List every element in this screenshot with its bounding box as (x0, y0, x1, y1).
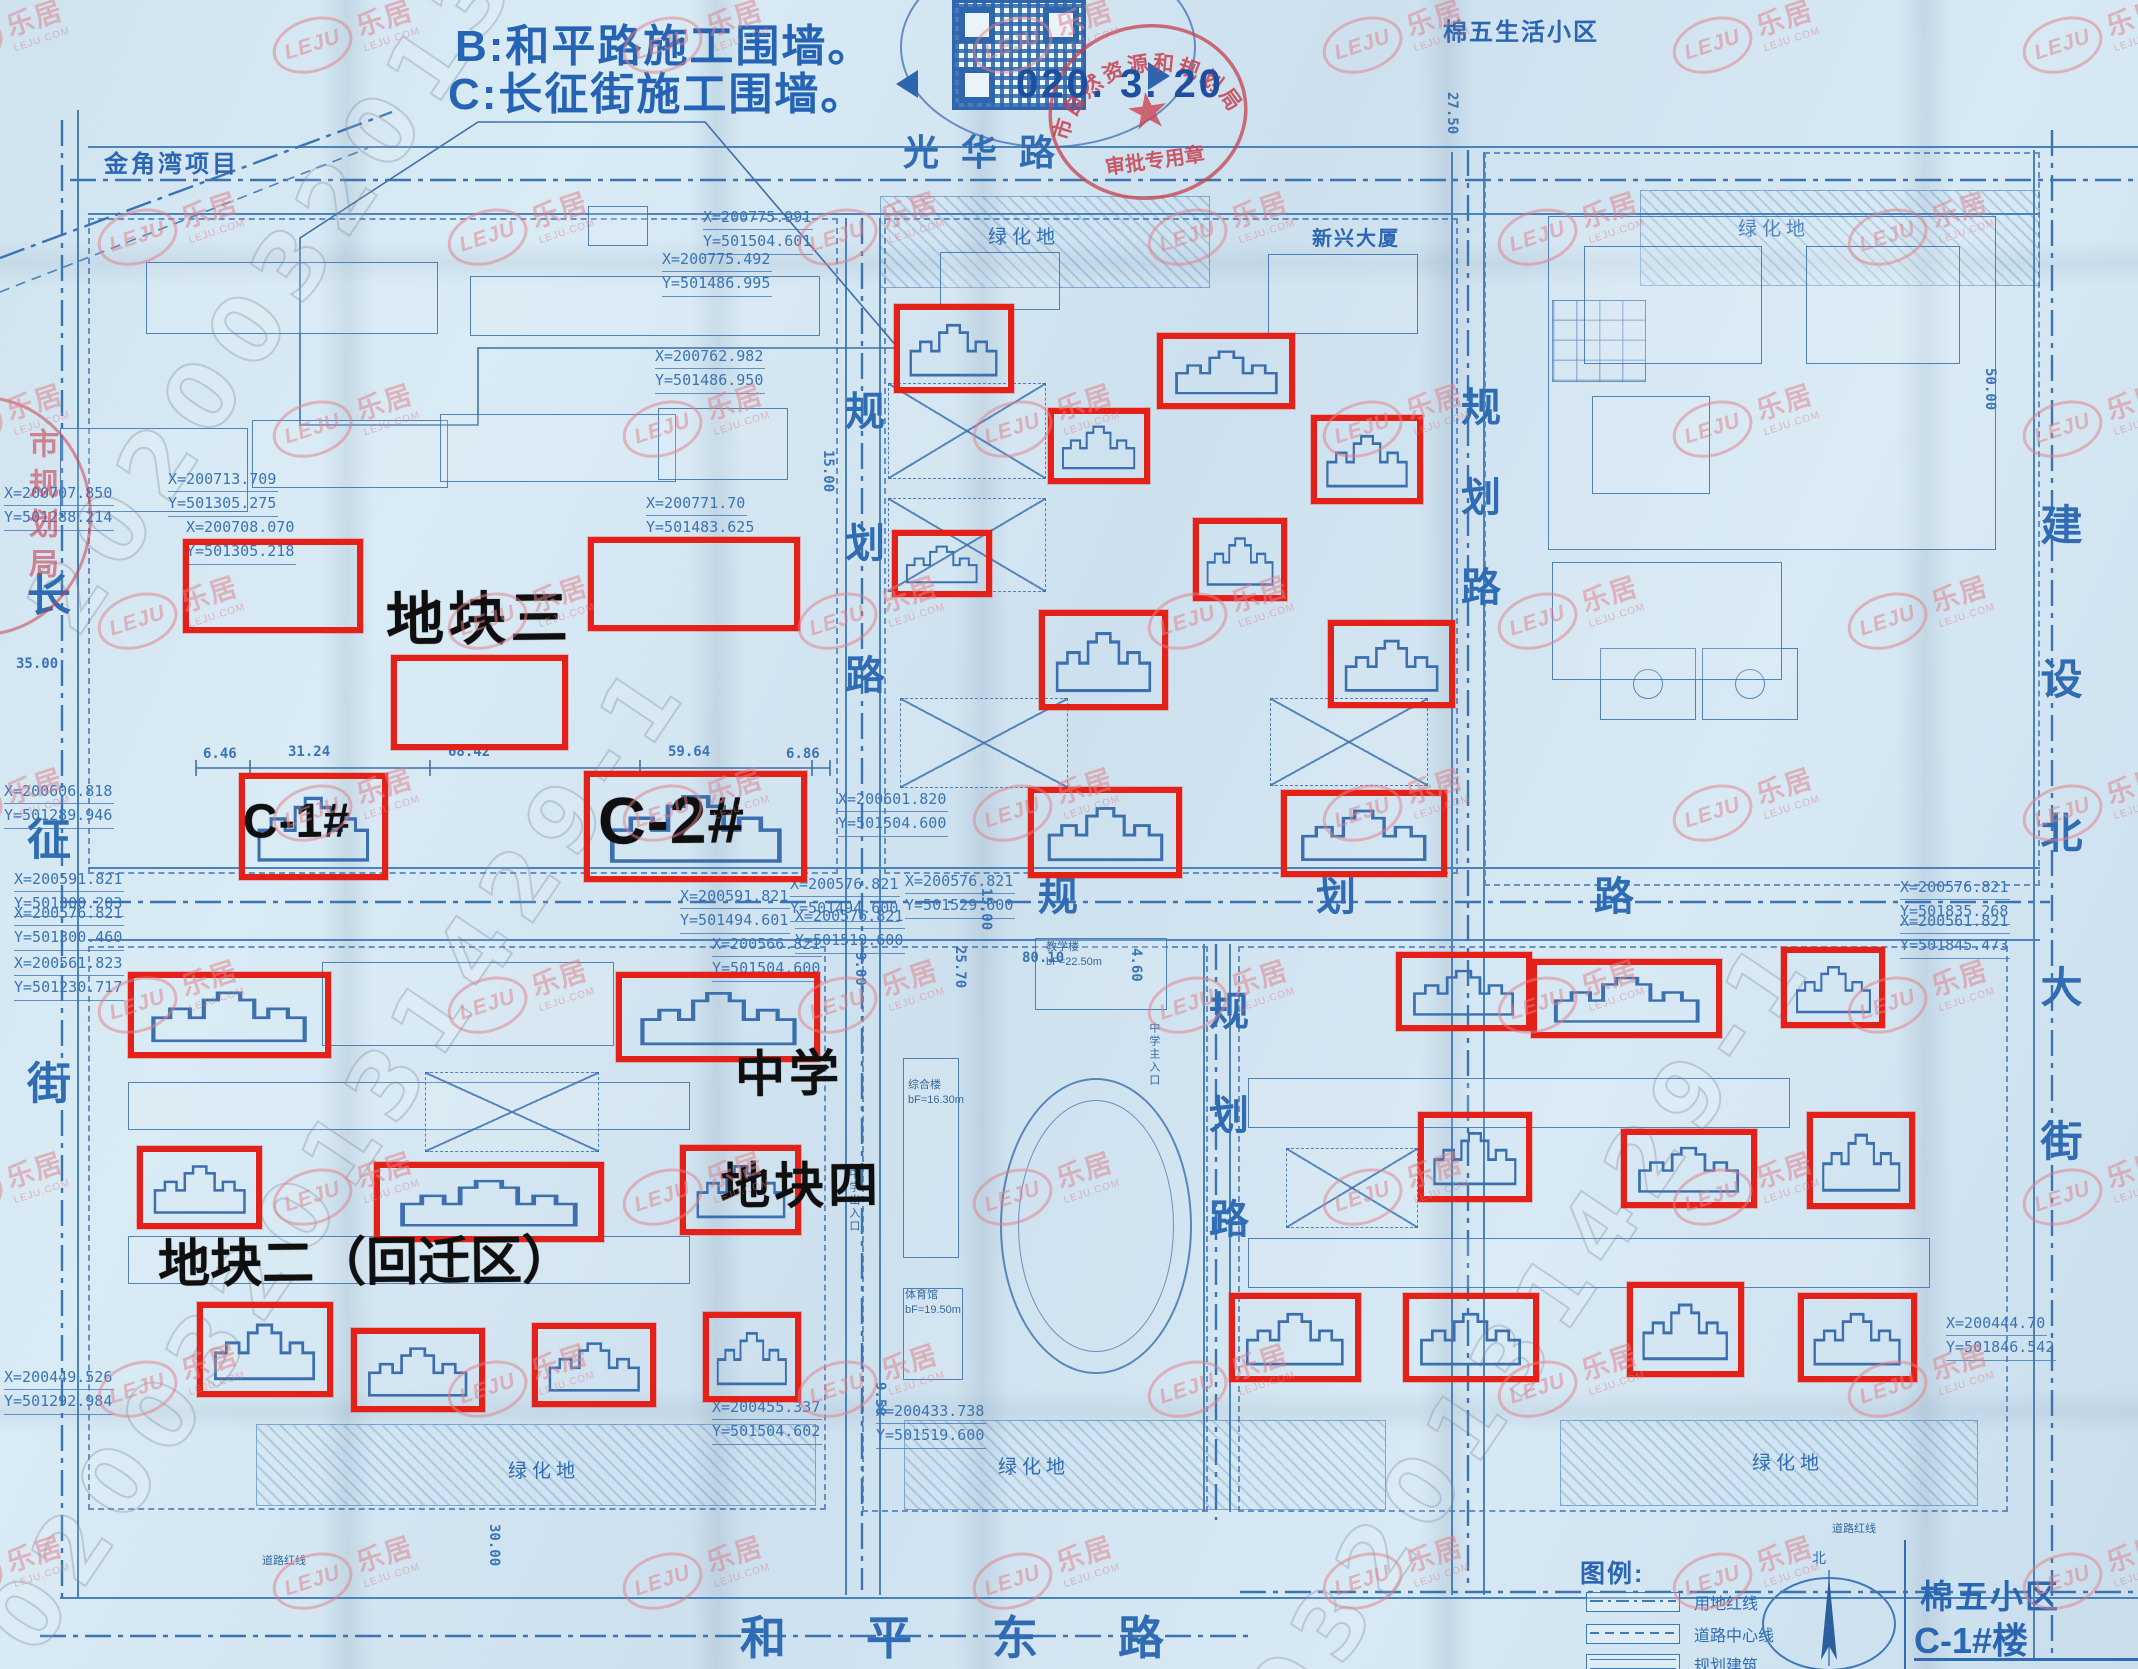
building-glyph (1323, 427, 1411, 492)
building-outline (1268, 254, 1418, 334)
dimension-label: 9.00 (852, 952, 868, 986)
highlight-box (1229, 1293, 1361, 1382)
building-outline (1592, 396, 1710, 494)
building-glyph (1793, 959, 1874, 1017)
approval-date: 020. 3. 20 (1016, 62, 1224, 107)
existing-building-crossed (425, 1072, 599, 1152)
green-area-label: 绿化地 (1752, 1448, 1824, 1475)
highlight-box (391, 655, 568, 750)
highlight-box (137, 1146, 262, 1229)
building-outline (940, 252, 1060, 310)
green-area-label: 绿化地 (988, 222, 1060, 249)
highlight-box (1311, 415, 1423, 504)
north-label: 北 (1812, 1548, 1826, 1568)
highlight-box (1328, 620, 1455, 708)
building-outline (1248, 1238, 1930, 1288)
highlight-box (1048, 408, 1150, 484)
highlight-box (1281, 790, 1447, 877)
building-glyph (906, 316, 1001, 381)
building-glyph (1341, 632, 1442, 696)
coordinate-label: X=200449.526Y=501292.984 (4, 1366, 114, 1415)
building-glyph (1171, 344, 1282, 398)
coordinate-label: X=200591.821Y=501494.601 (680, 885, 790, 934)
coordinate-label: X=200771.70Y=501483.625 (646, 492, 756, 541)
highlight-box (1039, 610, 1168, 710)
highlight-box (1621, 1129, 1757, 1208)
dimension-label: 6.46 (203, 746, 237, 762)
complex-building-label: 综合楼bF=16.30m (908, 1078, 964, 1108)
qr-finder (959, 7, 995, 43)
building-glyph (1409, 963, 1518, 1019)
titleblock-rule (1914, 1658, 2138, 1661)
road-redline-label-right: 道路红线 (1832, 1522, 1876, 1537)
planning-road-school: 规划路 (1196, 990, 1254, 1302)
road-centerline-symbol (1586, 1624, 1680, 1644)
building-glyph (1810, 1305, 1904, 1370)
highlight-box (183, 539, 363, 633)
existing-building-crossed (1270, 698, 1428, 786)
building-glyph (1416, 1305, 1525, 1370)
coordinate-label: X=200775.492Y=501486.995 (662, 248, 772, 297)
building-glyph (903, 540, 980, 586)
dimension-label: 50.00 (1982, 368, 1998, 410)
highlight-box (1028, 787, 1182, 878)
building-glyph (150, 1158, 249, 1218)
building-glyph (145, 984, 313, 1046)
highlight-box (532, 1323, 656, 1407)
dimension-label: 59.64 (668, 744, 710, 760)
building-outline (1552, 562, 1782, 680)
building-outline (1806, 246, 1960, 364)
label-c2: C-2# (598, 781, 746, 859)
coordinate-label: X=200713.709Y=501305.275 (168, 468, 278, 517)
north-compass-icon (1754, 1566, 1904, 1669)
note-line-c: C:长征街施工围墙。 (448, 58, 866, 122)
road-heping-east: 和平东路 (740, 1602, 1244, 1668)
building-glyph (1296, 802, 1432, 865)
dimension-label: 35.00 (16, 656, 58, 672)
building-outline (322, 962, 614, 1046)
titleblock-sheet: C-1#楼 (1914, 1612, 2028, 1664)
building-glyph (1819, 1125, 1903, 1196)
building-glyph (364, 1340, 471, 1400)
coordinate-label: X=200601.820Y=501504.600 (838, 788, 948, 837)
highlight-box (1798, 1293, 1917, 1382)
dimension-label: 31.24 (288, 744, 330, 760)
highlight-box (1781, 947, 1885, 1028)
coordinate-label: X=200433.738Y=501519.600 (876, 1400, 986, 1449)
qr-finder (959, 67, 995, 103)
legend-item-planned-building: 规划建筑 (1586, 1652, 1758, 1669)
existing-building-crossed (1286, 1148, 1418, 1228)
coordinate-label: X=200444.70Y=501846.542 (1946, 1312, 2056, 1361)
label-middle-school: 中学 (735, 1033, 844, 1106)
land-redline-symbol (1586, 1592, 1680, 1612)
highlight-box (588, 537, 800, 631)
planning-road-left: 规划路 (832, 390, 890, 786)
building-glyph (1043, 799, 1168, 865)
road-redline-label-left: 道路红线 (262, 1554, 306, 1569)
dimension-label: 25.70 (952, 946, 968, 988)
legend-item-land-redline: 用地红线 (1586, 1590, 1758, 1614)
building-outline (146, 262, 438, 334)
titleblock-project: 棉五小区 (1920, 1570, 2060, 1618)
dimension-label: 15.00 (978, 888, 994, 930)
highlight-box (1418, 1112, 1532, 1202)
building-glyph (1242, 1305, 1348, 1370)
building-glyph (714, 1324, 790, 1390)
dimension-label: 15.00 (820, 450, 836, 492)
running-track (1000, 1078, 1192, 1374)
highlight-box (1193, 518, 1287, 601)
legend-item-label: 规划建筑 (1694, 1652, 1758, 1669)
green-area-label: 绿化地 (508, 1456, 580, 1483)
coordinate-label: X=200576.821Y=501300.460 (14, 902, 124, 951)
legend-title: 图例: (1580, 1554, 1644, 1590)
highlight-box (892, 530, 992, 597)
coordinate-label: X=200762.982Y=501486.950 (655, 345, 765, 394)
building-glyph (1634, 1140, 1743, 1196)
building-glyph (1052, 623, 1155, 697)
legend-item-road-centerline: 道路中心线 (1586, 1622, 1774, 1646)
dimension-label: 9.50 (872, 1382, 888, 1416)
dimension-label: 30.00 (486, 1524, 502, 1566)
highlight-box (894, 304, 1014, 393)
legend-item-label: 用地红线 (1694, 1590, 1758, 1614)
building-glyph (1548, 970, 1706, 1026)
highlight-box (1157, 333, 1295, 409)
green-area-label: 绿化地 (998, 1452, 1070, 1479)
building-outline (1584, 246, 1762, 364)
building-glyph (1639, 1295, 1731, 1365)
planning-road-right: 规划路 (1448, 386, 1506, 656)
highlight-box (128, 972, 331, 1058)
coordinate-label: X=200561.823Y=501230.717 (14, 952, 124, 1001)
building-glyph (210, 1315, 319, 1385)
coordinate-label: X=200606.818Y=501289.946 (4, 780, 114, 829)
gym-building-label: 体育馆bF=19.50m (905, 1288, 961, 1318)
highlight-box (1403, 1293, 1539, 1382)
dimension-label: 6.86 (786, 746, 820, 762)
left-stamp-text: 市规划局 (18, 428, 62, 588)
teaching-building-label: 教学楼bF=22.50m (1046, 940, 1102, 970)
dimension-label: 4.60 (1128, 948, 1144, 982)
dimension-label: 27.50 (1444, 92, 1460, 134)
stamp-caption: 审批专用章 (1104, 142, 1206, 180)
highlight-box (1627, 1282, 1744, 1377)
highlight-box (1396, 952, 1532, 1031)
street-jianshe-north: 建设北大街 (2028, 503, 2089, 1273)
label-mianwu-community: 棉五生活小区 (1443, 12, 1599, 47)
planned-building-symbol (1586, 1654, 1680, 1669)
highlight-box (351, 1328, 485, 1412)
existing-building-crossed (900, 698, 1068, 788)
building-glyph (1430, 1124, 1520, 1190)
highlight-box (703, 1312, 801, 1402)
building-outline (128, 1082, 690, 1130)
label-plot3: 地块三 (386, 571, 573, 657)
building-outline (440, 414, 676, 482)
highlight-box (1807, 1112, 1915, 1209)
marker-triangle-left-icon (896, 70, 918, 98)
label-plot2: 地块二（回迁区） (158, 1218, 575, 1297)
coordinate-label: X=200561.821Y=501845.473 (1900, 910, 2010, 959)
approval-stamp: 市自然资源和规划局 ★ 审批专用章 (1040, 16, 1280, 226)
coordinate-label: X=200455.337Y=501504.602 (712, 1396, 822, 1445)
label-xinxing-tower: 新兴大厦 (1312, 222, 1400, 251)
school-main-entrance-label: 中学主入口 (1146, 1022, 1161, 1087)
site-plan: 020. 3. 20 市自然资源和规划局 ★ 审批专用章 市规划局 B:和平路施… (0, 0, 2138, 1669)
label-plot4: 地块四 (720, 1145, 883, 1219)
building-glyph (1059, 419, 1138, 473)
titleblock-divider (1904, 1540, 1906, 1669)
track-infield (1018, 1100, 1174, 1352)
label-c1: C-1# (243, 793, 352, 849)
building-glyph (545, 1335, 644, 1395)
building-outline (658, 408, 788, 480)
label-jinjiaowan: 金角湾项目 (104, 144, 239, 179)
coordinate-label: X=200576.821Y=501529.600 (905, 870, 1015, 919)
highlight-box (1531, 959, 1722, 1038)
building-outline (588, 206, 648, 246)
existing-building-crossed (888, 383, 1046, 479)
highlight-box (197, 1302, 333, 1397)
building-glyph (1204, 530, 1276, 590)
building-outline (252, 420, 448, 488)
